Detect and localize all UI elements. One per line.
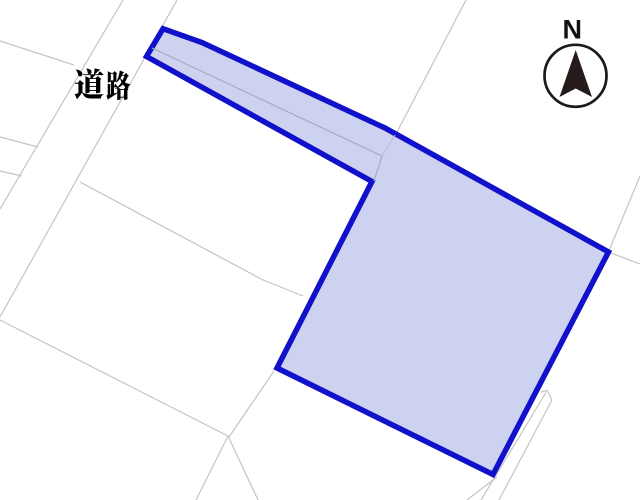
svg-text:N: N	[562, 15, 582, 45]
